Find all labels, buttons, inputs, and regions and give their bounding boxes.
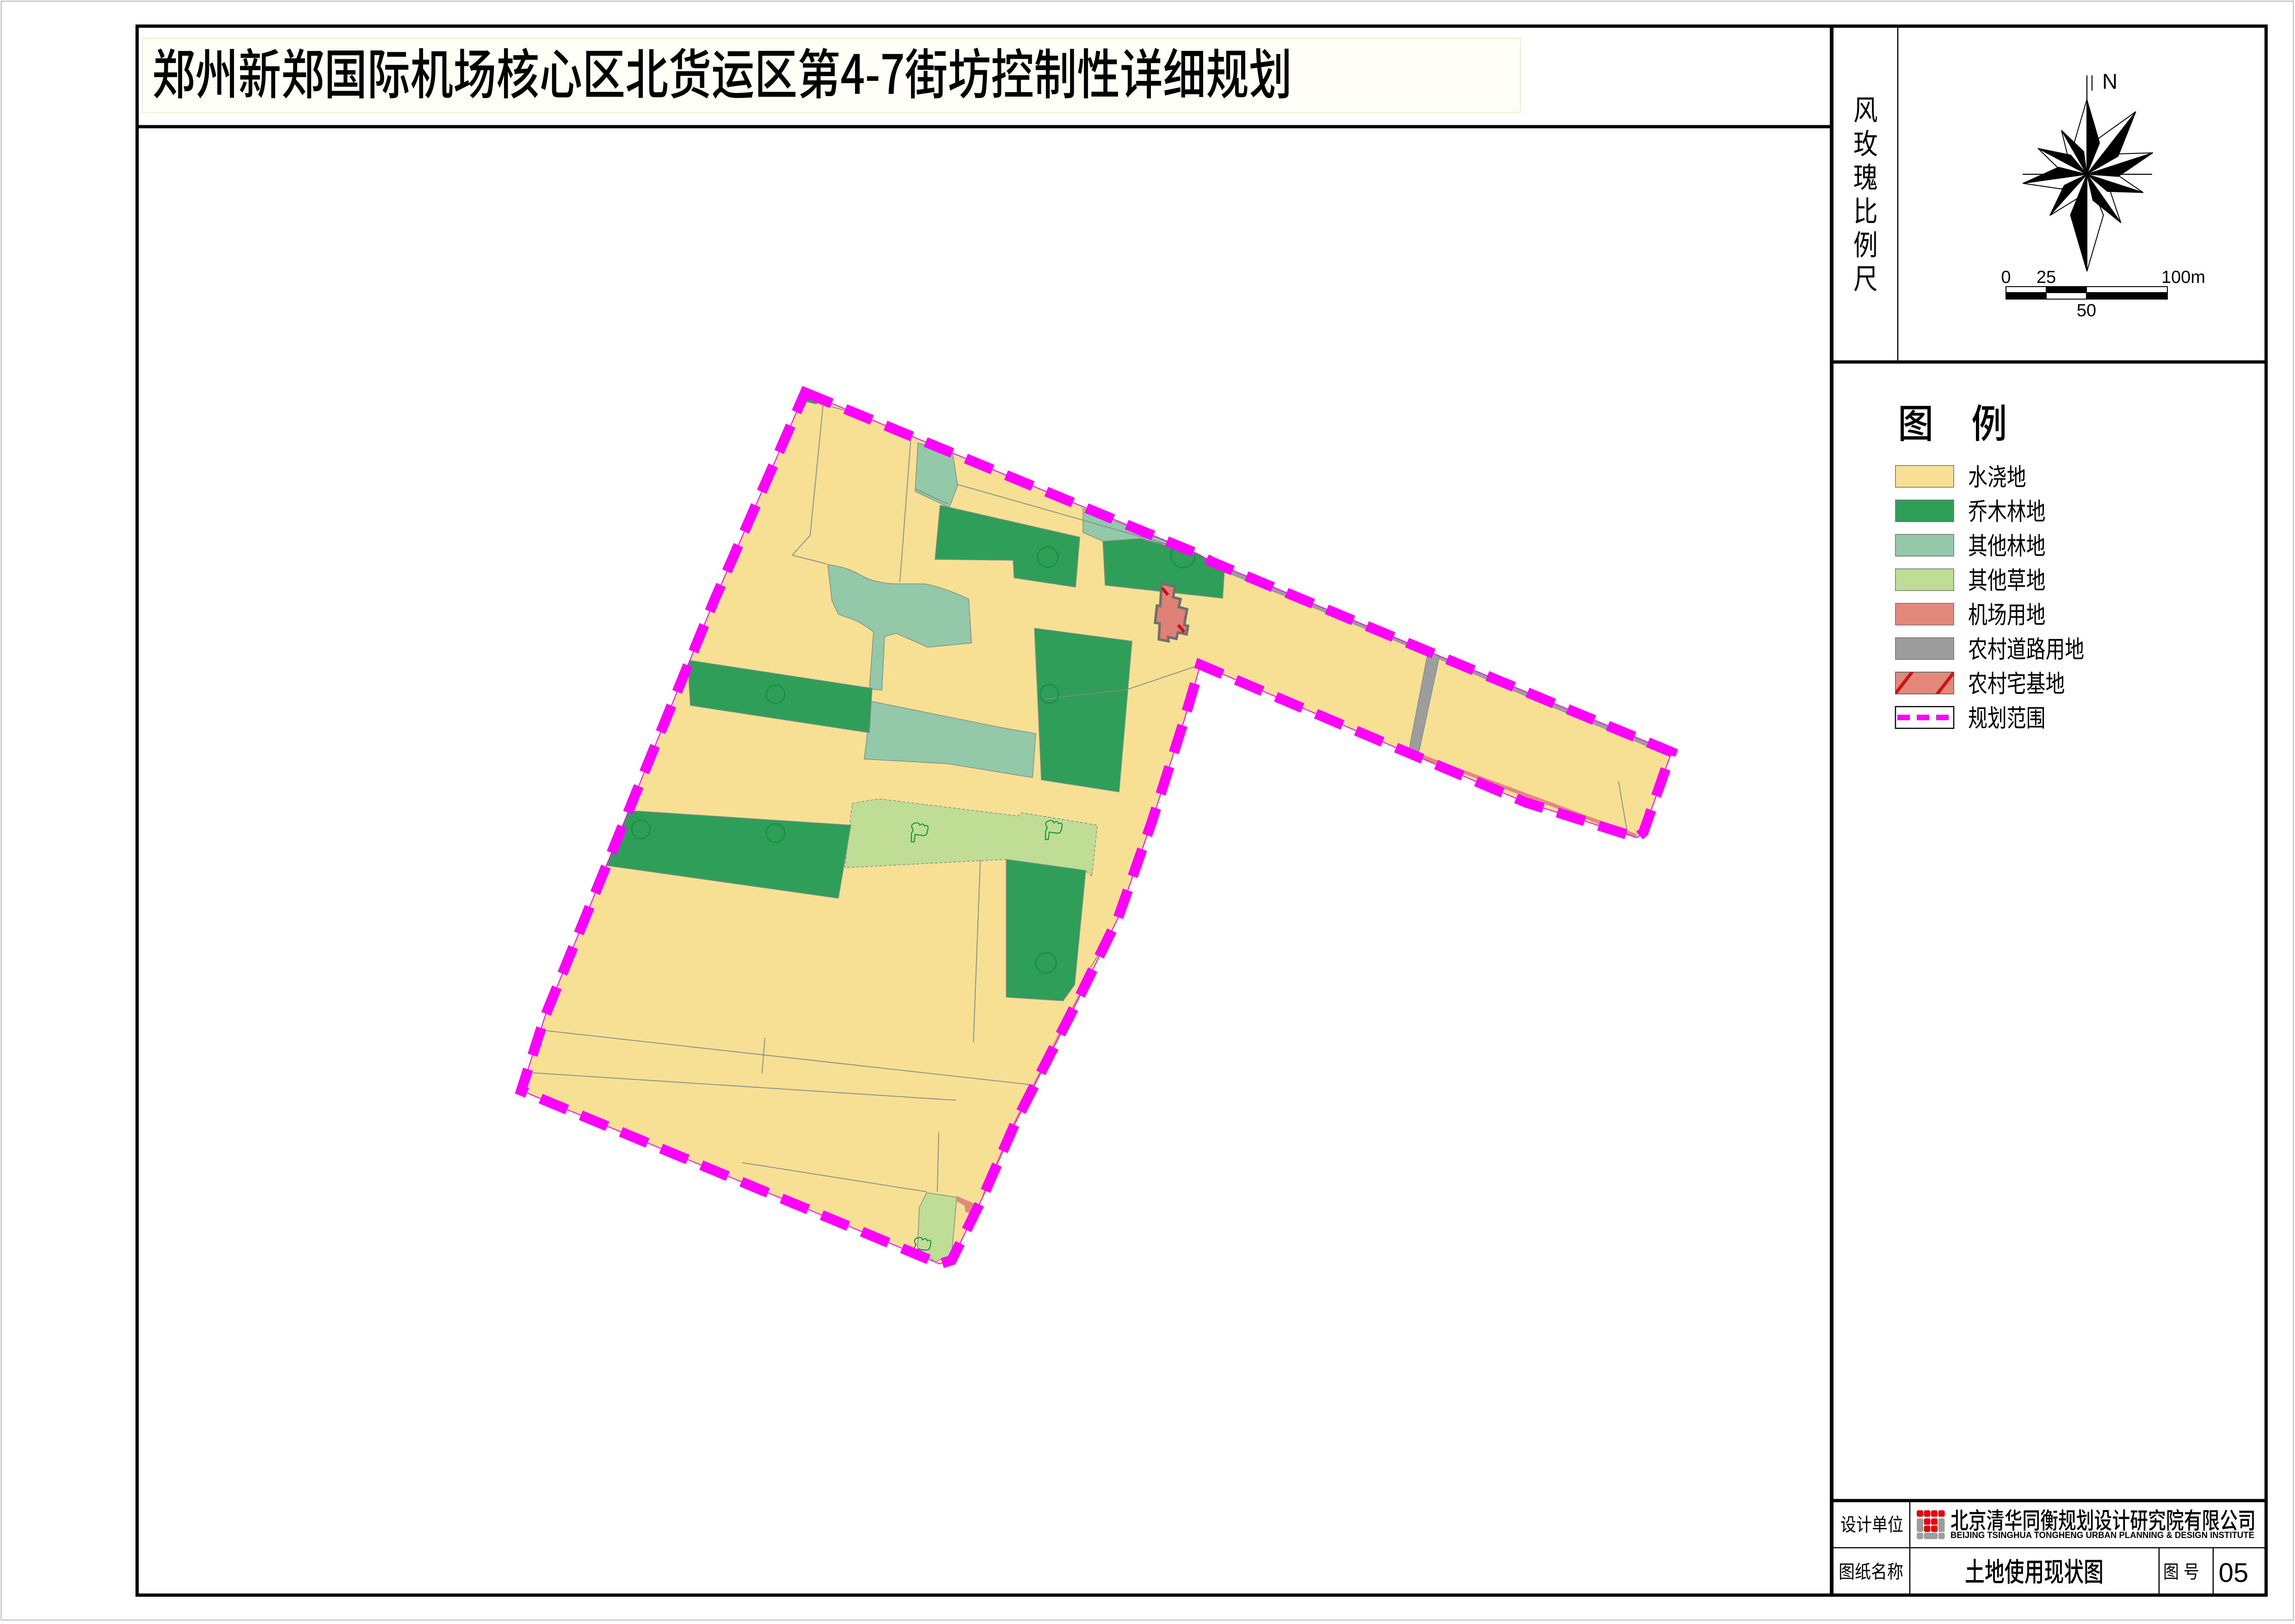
svg-text:BEIJING TSINGHUA TONGHENG URBA: BEIJING TSINGHUA TONGHENG URBAN PLANNING… <box>1950 1531 2254 1540</box>
svg-text:0: 0 <box>2001 268 2011 287</box>
svg-text:N: N <box>2102 69 2117 93</box>
svg-text:50: 50 <box>2077 301 2096 320</box>
svg-text:100m: 100m <box>2161 268 2205 287</box>
svg-text:05: 05 <box>2219 1558 2249 1588</box>
svg-text:25: 25 <box>2037 268 2056 287</box>
